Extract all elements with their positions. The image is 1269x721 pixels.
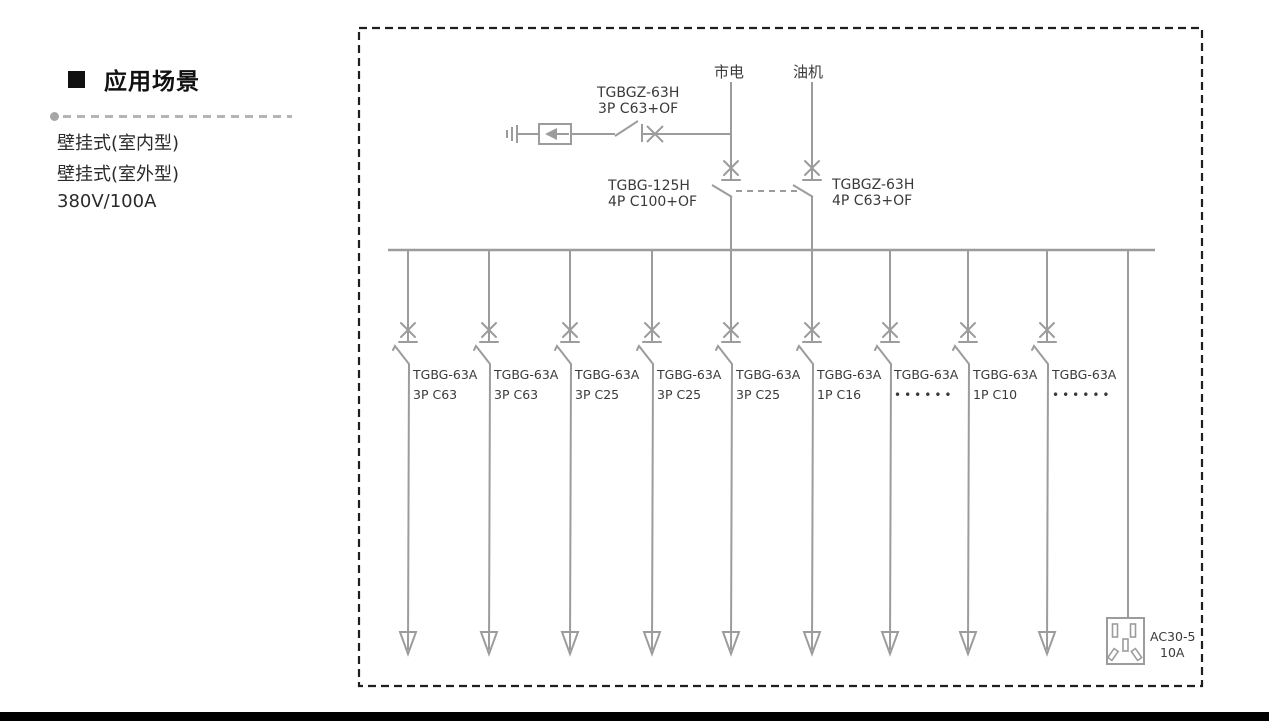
breaker-icon [474, 323, 498, 364]
feeder-branch-2 [474, 250, 498, 654]
feeder-rating-label: 1P C16 [817, 387, 861, 402]
feeder-branch-9 [1032, 250, 1056, 654]
feeder-rating-label: 3P C63 [494, 387, 538, 402]
feeder-branch-8 [953, 250, 977, 654]
feeder-rating-label: •••••• [894, 388, 954, 402]
feeder-branch-5 [716, 250, 740, 654]
feeder-model-label: TGBG-63A [574, 367, 640, 382]
feeder-model-label: TGBG-63A [412, 367, 478, 382]
breaker-icon [716, 323, 740, 364]
main-left-model: TGBG-125H [607, 178, 690, 194]
feeder-model-label: TGBG-63A [493, 367, 559, 382]
feeder-rating-label: 3P C63 [413, 387, 457, 402]
mains-breaker-blade [712, 185, 732, 197]
feeder-model-label: TGBG-63A [816, 367, 882, 382]
feeder-rating-label: 3P C25 [657, 387, 701, 402]
main-left-rating: 4P C100+OF [608, 194, 697, 210]
page: 应用场景 壁挂式(室内型) 壁挂式(室外型) 380V/100A [0, 0, 1269, 721]
feeder-model-label: TGBG-63A [656, 367, 722, 382]
feeder-model-label: TGBG-63A [735, 367, 801, 382]
feeder-labels: TGBG-63A 3P C63 TGBG-63A 3P C63 TGBG-63A… [412, 367, 1117, 402]
surge-breaker-rating: 3P C63+OF [598, 101, 678, 117]
earth-icon [507, 125, 517, 143]
breaker-icon [1032, 323, 1056, 364]
single-line-diagram: 市电 油机 [0, 0, 1269, 721]
feeder-model-label: TGBG-63A [972, 367, 1038, 382]
mains-source-label: 市电 [714, 63, 744, 81]
socket-icon [1107, 618, 1144, 664]
feeder-branch-1 [393, 250, 417, 654]
feeder-branch-6 [797, 250, 821, 654]
breaker-icon [555, 323, 579, 364]
feeder-rating-label: 3P C25 [575, 387, 619, 402]
socket-model-label: AC30-5 [1150, 629, 1195, 644]
breaker-icon [953, 323, 977, 364]
bottom-black-bar [0, 712, 1269, 721]
breaker-icon [797, 323, 821, 364]
feeder-branches [393, 250, 1056, 654]
socket-rating-label: 10A [1160, 645, 1185, 660]
breaker-icon [637, 323, 661, 364]
feeder-rating-label: 3P C25 [736, 387, 780, 402]
spd-icon [539, 124, 571, 144]
feeder-branch-7 [875, 250, 899, 654]
feeder-branch-3 [555, 250, 579, 654]
top-labels: TGBGZ-63H 3P C63+OF TGBG-125H 4P C100+OF… [596, 85, 914, 210]
wires [388, 82, 1155, 618]
feeder-branch-4 [637, 250, 661, 654]
feeder-rating-label: •••••• [1052, 388, 1112, 402]
feeder-model-label: TGBG-63A [1051, 367, 1117, 382]
main-right-rating: 4P C63+OF [832, 193, 912, 209]
breaker-icon [393, 323, 417, 364]
breaker-icon [875, 323, 899, 364]
feeder-rating-label: 1P C10 [973, 387, 1017, 402]
feeder-model-label: TGBG-63A [893, 367, 959, 382]
generator-source-label: 油机 [793, 63, 823, 81]
surge-breaker-icon [615, 121, 731, 142]
surge-breaker-model: TGBGZ-63H [596, 85, 679, 101]
main-right-model: TGBGZ-63H [831, 177, 914, 193]
